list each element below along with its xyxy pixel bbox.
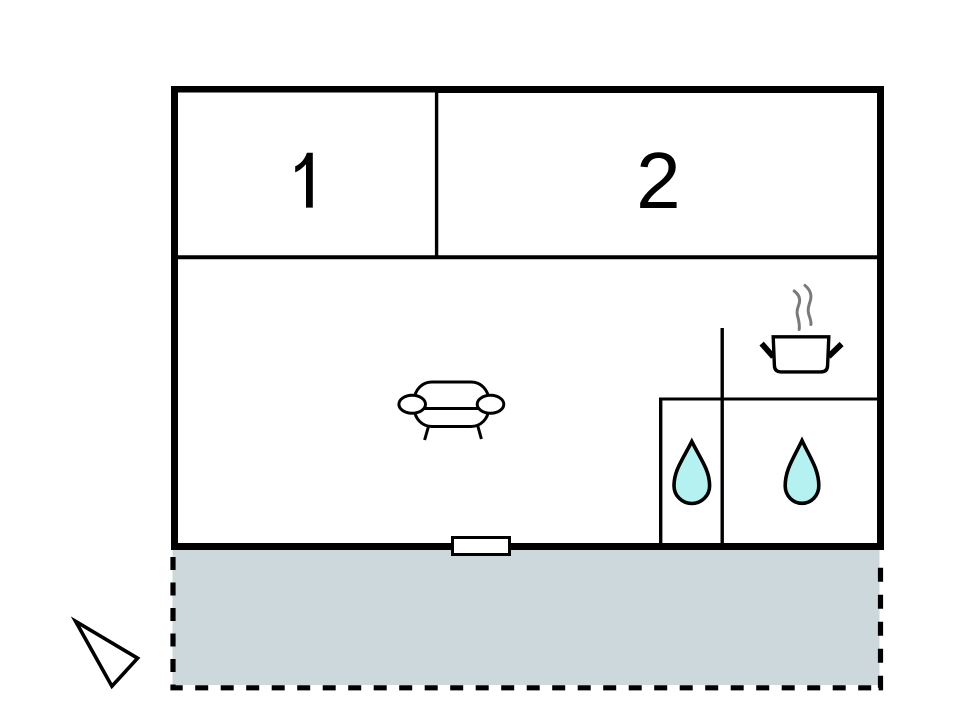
svg-text:2: 2 xyxy=(636,136,681,225)
